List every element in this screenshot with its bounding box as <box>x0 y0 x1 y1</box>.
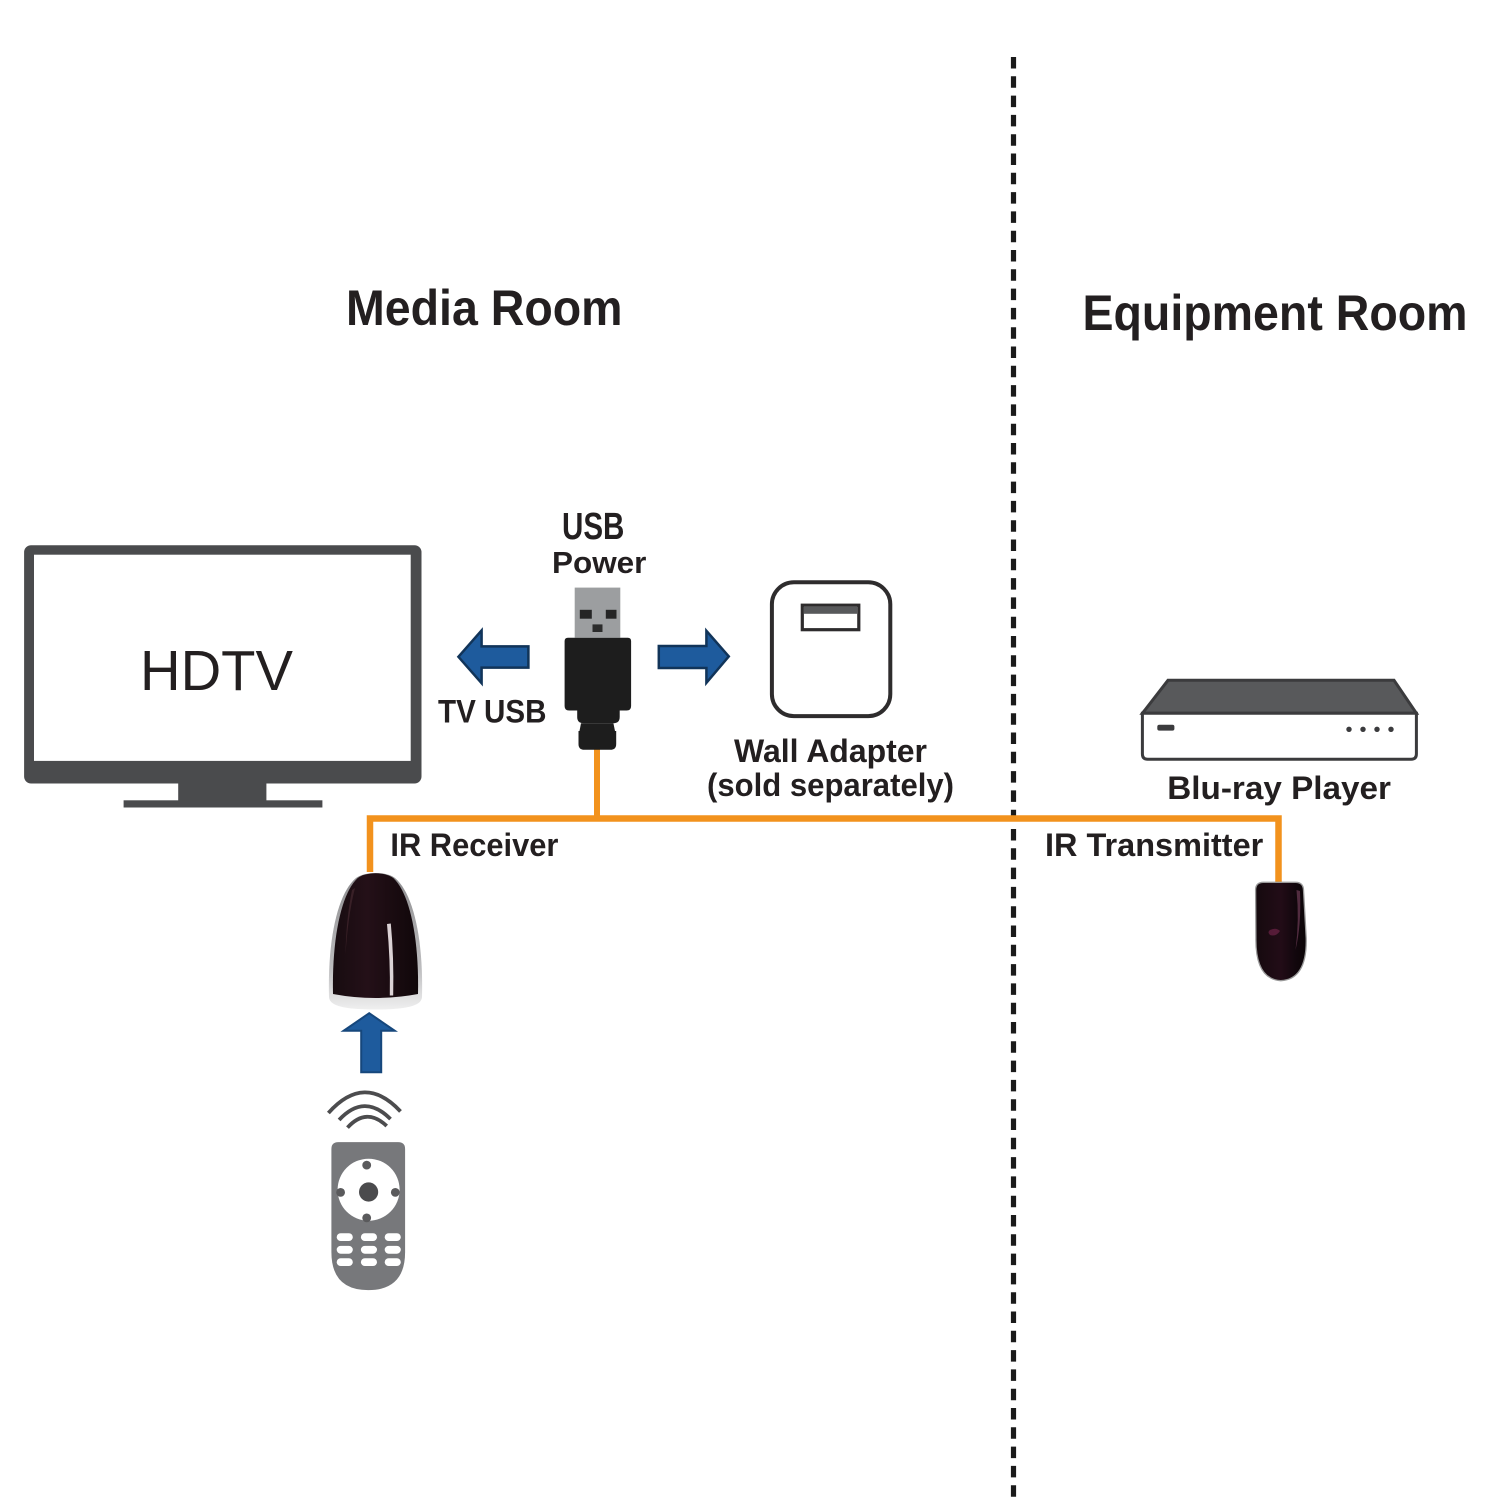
svg-text:Power: Power <box>552 545 646 580</box>
svg-text:Blu-ray Player: Blu-ray Player <box>1167 770 1391 806</box>
svg-text:Media Room: Media Room <box>346 280 623 336</box>
svg-text:USB: USB <box>562 506 624 548</box>
svg-text:IR Transmitter: IR Transmitter <box>1045 827 1263 863</box>
svg-text:Equipment Room: Equipment Room <box>1083 285 1468 341</box>
svg-text:IR Receiver: IR Receiver <box>390 827 558 863</box>
svg-text:Wall Adapter: Wall Adapter <box>734 733 927 769</box>
svg-text:(sold separately): (sold separately) <box>707 767 954 803</box>
svg-text:HDTV: HDTV <box>140 639 293 703</box>
svg-text:TV USB: TV USB <box>438 694 547 730</box>
